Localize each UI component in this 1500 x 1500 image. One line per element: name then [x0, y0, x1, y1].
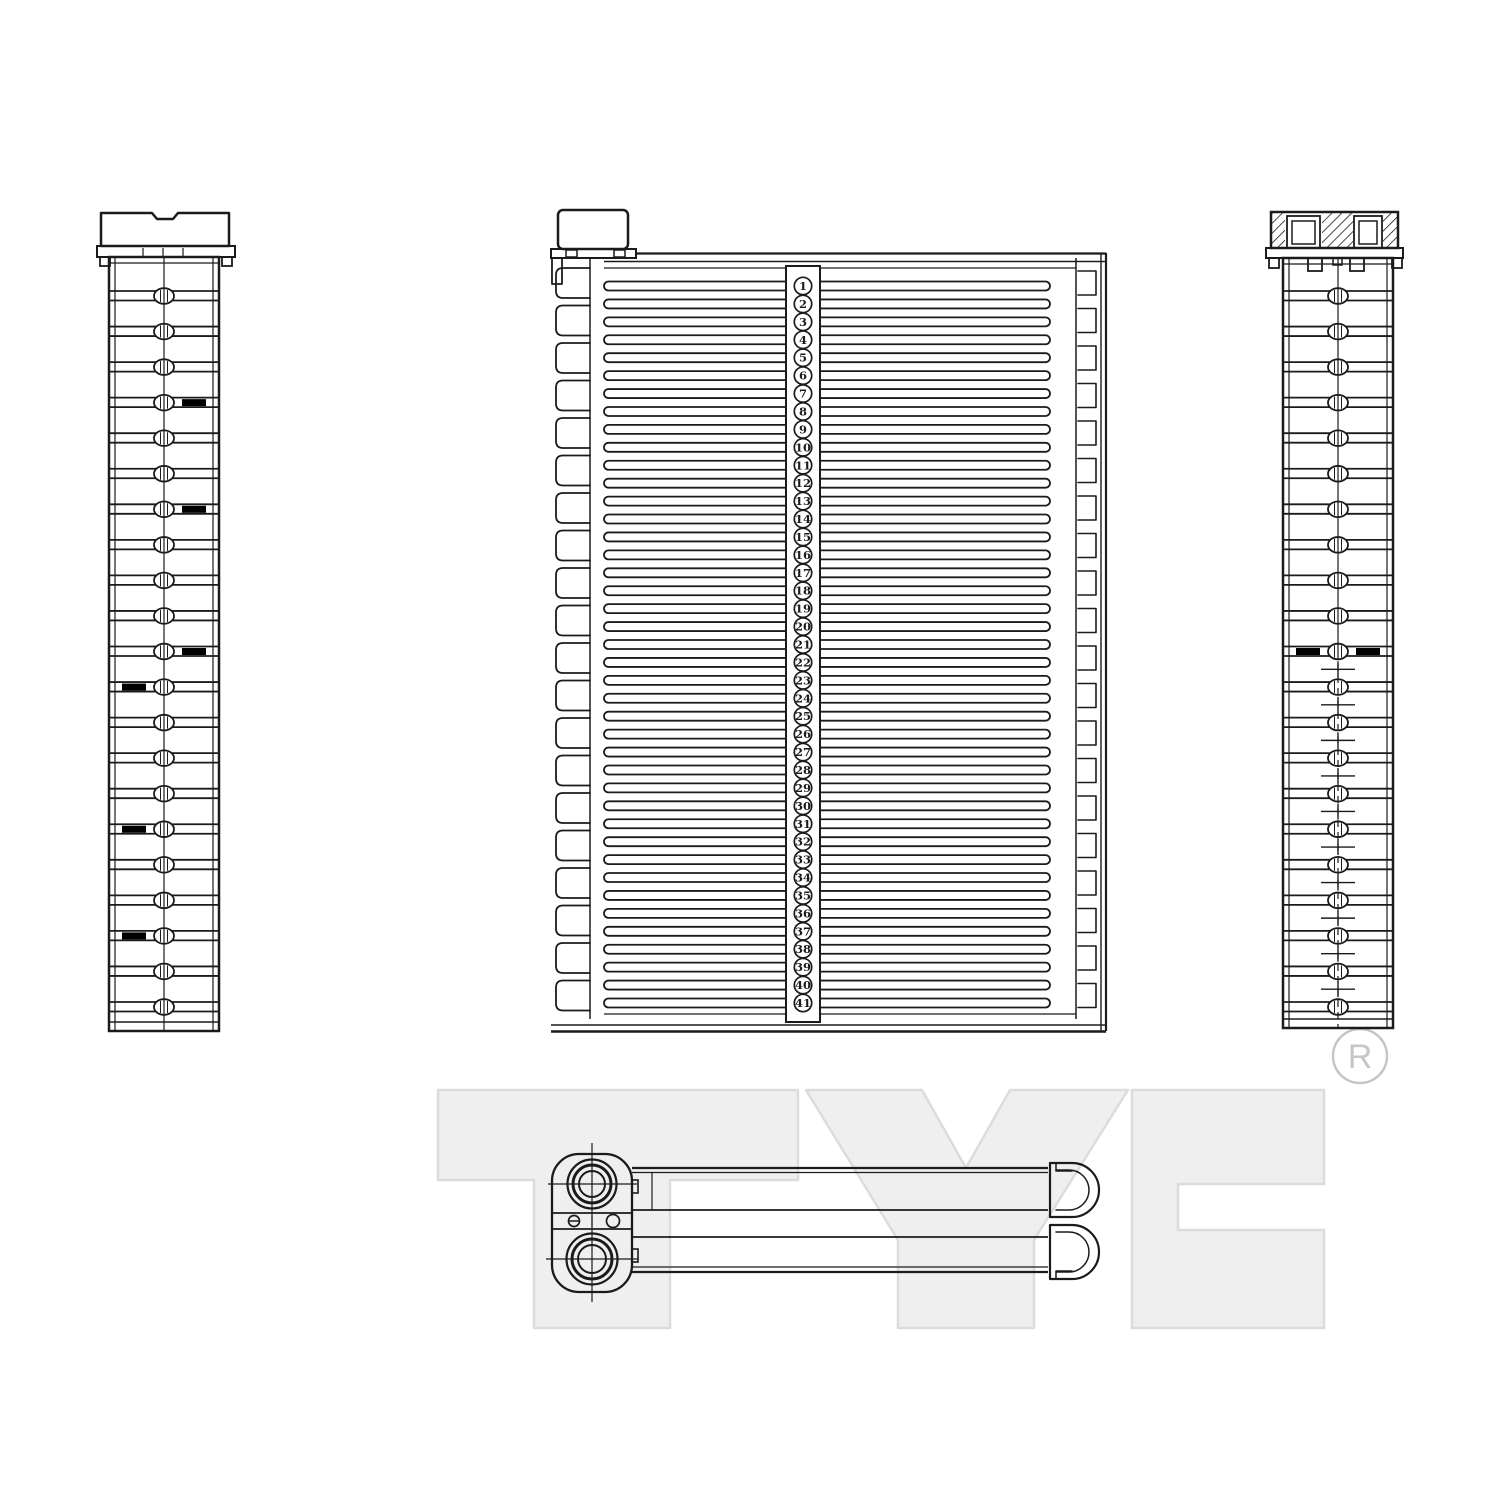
tube-number: 37	[795, 924, 811, 938]
tank-cell	[556, 606, 590, 636]
tank-cell	[556, 831, 590, 861]
tank-cell	[556, 343, 590, 373]
tank-cell-right	[1078, 571, 1096, 595]
tube-number: 21	[795, 638, 811, 652]
tube-number: 6	[799, 369, 807, 383]
tank-cell-right	[1078, 459, 1096, 483]
left-side-view	[97, 213, 235, 1031]
tank-cell	[556, 868, 590, 898]
tank-cell	[556, 756, 590, 786]
tube-number: 14	[795, 512, 811, 526]
end-cap-lobe-inner	[1056, 1232, 1089, 1272]
tank-cell-right	[1078, 534, 1096, 558]
tube-number: 29	[795, 781, 811, 795]
tube	[604, 873, 1050, 882]
tube-number: 27	[795, 745, 811, 759]
tube	[604, 765, 1050, 774]
tube-number: 38	[795, 942, 811, 956]
tank-cell-right	[1078, 384, 1096, 408]
tube	[604, 963, 1050, 972]
tube-number: 18	[795, 584, 811, 598]
tube-number: 23	[795, 673, 811, 687]
tube-number: 33	[795, 853, 811, 867]
tube-number: 3	[799, 315, 807, 329]
tank-cell-right	[1078, 421, 1096, 445]
tank-cell-right	[1078, 834, 1096, 858]
watermark-letter-t	[438, 1090, 798, 1328]
tube-number: 41	[795, 996, 811, 1010]
tube	[604, 891, 1050, 900]
alignment-mark	[1296, 648, 1320, 655]
tube-number: 34	[795, 871, 811, 885]
cap-window-inner	[1359, 221, 1377, 244]
tube-number: 12	[795, 476, 811, 490]
tank-cell-right	[1078, 871, 1096, 895]
tube-number: 16	[795, 548, 811, 562]
tube	[604, 353, 1050, 362]
tube	[604, 801, 1050, 810]
tube	[604, 461, 1050, 470]
tube-number-column: 1234567891011121314151617181920212223242…	[786, 266, 820, 1022]
tube-number: 39	[795, 960, 811, 974]
tube	[604, 371, 1050, 380]
tube-number: 17	[795, 566, 811, 580]
tank-cell-right	[1078, 684, 1096, 708]
technical-drawing-canvas: R123456789101112131415161718192021222324…	[0, 0, 1500, 1500]
tyc-watermark	[438, 1090, 1324, 1328]
alignment-mark	[122, 932, 146, 939]
tube	[604, 855, 1050, 864]
tube-number: 35	[795, 888, 811, 902]
evaporator-core-drawing: R123456789101112131415161718192021222324…	[0, 0, 1500, 1500]
tube-number: 15	[795, 530, 811, 544]
tube-number: 1	[799, 279, 807, 293]
flange-tab	[222, 257, 232, 266]
tank-cell	[556, 456, 590, 486]
alignment-mark	[122, 826, 146, 833]
tube-number: 8	[799, 404, 807, 418]
tank-cell	[556, 681, 590, 711]
tube	[604, 819, 1050, 828]
tube-number: 31	[795, 817, 811, 831]
front-view: 1234567891011121314151617181920212223242…	[551, 210, 1106, 1032]
tube	[604, 837, 1050, 846]
tube	[604, 694, 1050, 703]
tube-stack	[604, 282, 1050, 1008]
flange-tick	[566, 250, 577, 257]
registered-letter: R	[1348, 1038, 1373, 1076]
tube-number: 7	[799, 387, 807, 401]
tube	[604, 479, 1050, 488]
tank-cell-right	[1078, 646, 1096, 670]
tube-number: 10	[795, 440, 811, 454]
hatched-section	[1271, 212, 1285, 248]
cap-window-inner	[1292, 221, 1315, 244]
tube	[604, 568, 1050, 577]
tube	[604, 586, 1050, 595]
tank-cell-right	[1078, 721, 1096, 745]
tank-cell	[556, 381, 590, 411]
tube	[604, 407, 1050, 416]
tube-number: 26	[795, 727, 811, 741]
tank-cell	[556, 906, 590, 936]
tank-cell	[556, 793, 590, 823]
tube-number: 36	[795, 906, 811, 920]
tank-cell	[556, 531, 590, 561]
tube-number: 24	[795, 691, 811, 705]
tube	[604, 282, 1050, 291]
tube	[604, 748, 1050, 757]
tube-number: 2	[799, 297, 807, 311]
tube-number: 4	[799, 333, 807, 347]
tube	[604, 550, 1050, 559]
tank-cell-right	[1078, 946, 1096, 970]
flange-foot	[1269, 258, 1279, 268]
tube-number: 25	[795, 709, 811, 723]
flange-tick	[614, 250, 625, 257]
tank-cell	[556, 418, 590, 448]
tube	[604, 909, 1050, 918]
tank-cell	[556, 568, 590, 598]
tank-cell	[556, 943, 590, 973]
tube	[604, 640, 1050, 649]
tube	[604, 299, 1050, 308]
tank-cell	[556, 718, 590, 748]
tank-cell-right	[1078, 346, 1096, 370]
tank-cell	[556, 306, 590, 336]
tube-number: 28	[795, 763, 811, 777]
tube	[604, 443, 1050, 452]
tube	[604, 658, 1050, 667]
tube-number: 19	[795, 602, 811, 616]
tube-number: 22	[795, 655, 811, 669]
tube	[604, 712, 1050, 721]
tube	[604, 497, 1050, 506]
right-side-view	[1266, 212, 1403, 1028]
tube	[604, 389, 1050, 398]
tube	[604, 335, 1050, 344]
tank-cell	[556, 981, 590, 1011]
alignment-mark	[182, 399, 206, 406]
watermark-letter-y	[806, 1090, 1128, 1328]
tank-cell	[556, 493, 590, 523]
tube	[604, 622, 1050, 631]
tank-cell-right	[1078, 796, 1096, 820]
tube	[604, 927, 1050, 936]
tube-number: 5	[799, 351, 807, 365]
alignment-mark	[1356, 648, 1380, 655]
tube	[604, 676, 1050, 685]
hatched-section	[1383, 212, 1398, 248]
hatched-section	[1322, 212, 1353, 248]
tube	[604, 999, 1050, 1008]
tank-cell-right	[1078, 309, 1096, 333]
tank-cell-right	[1078, 496, 1096, 520]
tube-number: 32	[795, 835, 811, 849]
alignment-mark	[182, 648, 206, 655]
tube-number: 13	[795, 494, 811, 508]
registered-trademark-icon: R	[1333, 1029, 1387, 1083]
inlet-fitting	[558, 210, 628, 249]
tube	[604, 515, 1050, 524]
tube-number: 40	[795, 978, 811, 992]
right-view-flange	[1266, 248, 1403, 258]
tank-cell-right	[1078, 609, 1096, 633]
tube	[604, 532, 1050, 541]
alignment-mark	[182, 506, 206, 513]
left-view-top-cap	[101, 213, 229, 246]
alignment-mark	[122, 684, 146, 691]
tube	[604, 604, 1050, 613]
tube-number: 9	[799, 422, 807, 436]
watermark-letter-c	[1132, 1090, 1324, 1328]
tube	[604, 317, 1050, 326]
left-view-flange	[97, 246, 235, 257]
tank-cell-right	[1078, 984, 1096, 1008]
tube	[604, 981, 1050, 990]
tube	[604, 783, 1050, 792]
tube	[604, 730, 1050, 739]
tube-number: 11	[795, 458, 811, 472]
tube	[604, 945, 1050, 954]
tank-cell-right	[1078, 759, 1096, 783]
tank-cell-right	[1078, 909, 1096, 933]
tube-number: 20	[795, 620, 811, 634]
tank-cell-right	[1078, 271, 1096, 295]
tube-number: 30	[795, 799, 811, 813]
tube	[604, 425, 1050, 434]
tank-cell	[556, 643, 590, 673]
